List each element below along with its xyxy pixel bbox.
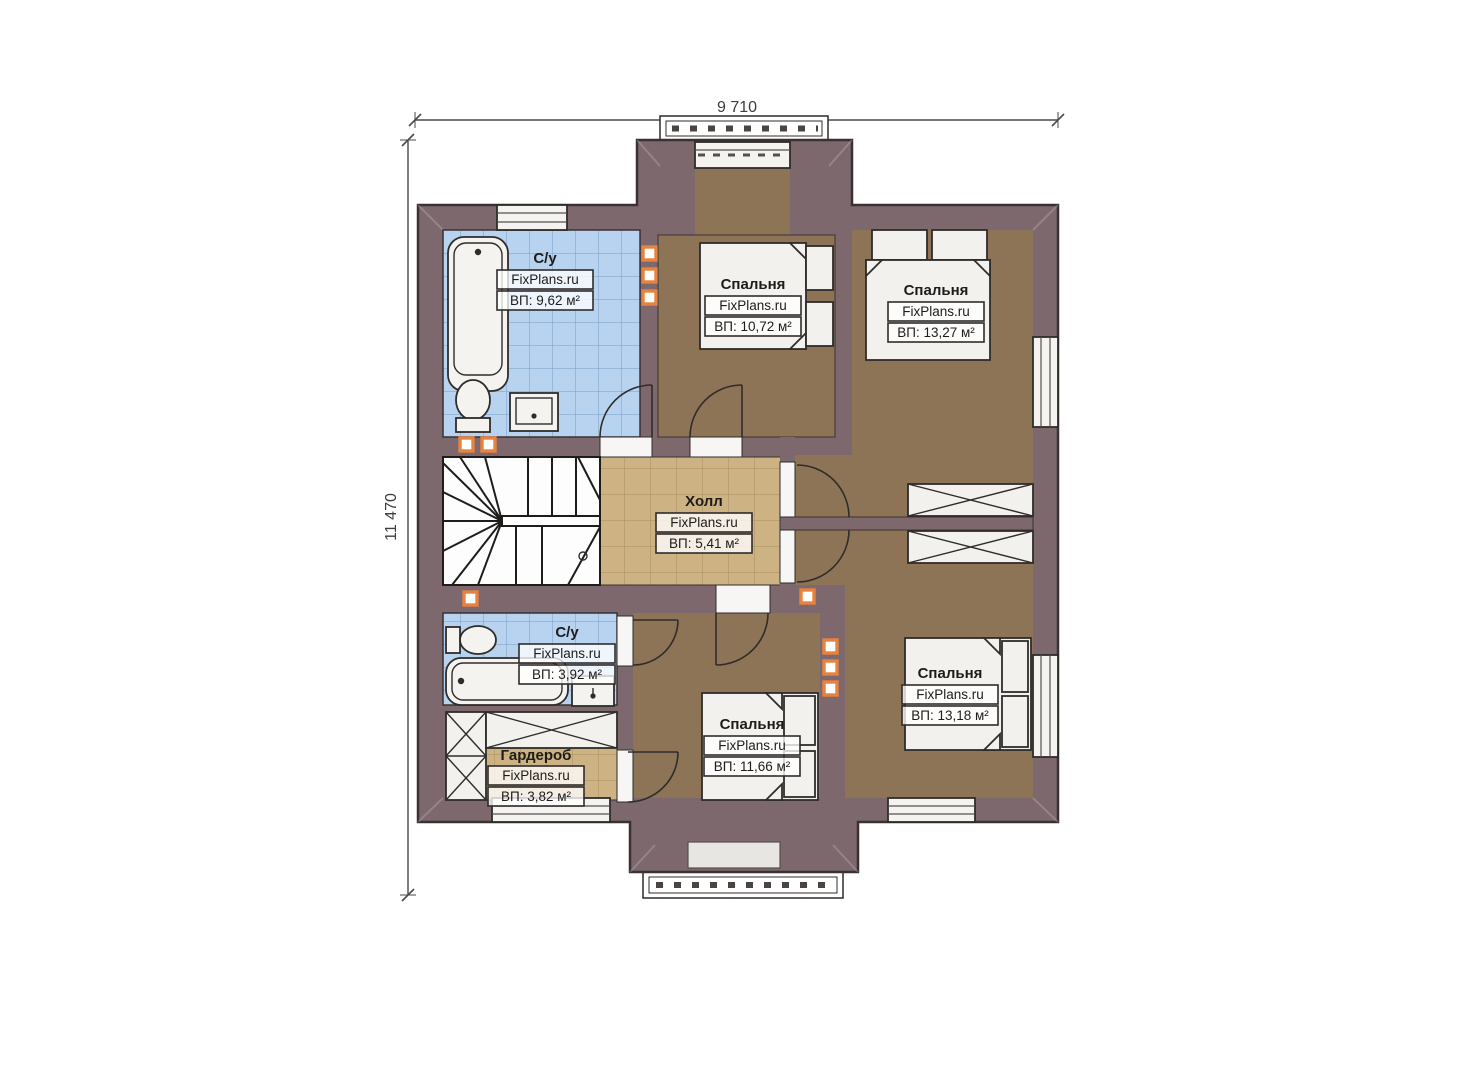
dimension-height-label: 11 470 bbox=[383, 493, 400, 541]
balcony-railing-bottom bbox=[643, 872, 843, 898]
window-bay-bottom bbox=[688, 842, 780, 868]
balcony-railing-top bbox=[660, 116, 828, 141]
watermark: FixPlans.ru bbox=[719, 298, 787, 313]
wardrobe-cabinet-horizontal bbox=[486, 712, 617, 748]
bathtub bbox=[448, 237, 508, 391]
toilet bbox=[456, 380, 490, 432]
watermark: FixPlans.ru bbox=[533, 646, 601, 661]
watermark: FixPlans.ru bbox=[502, 768, 570, 783]
toilet bbox=[446, 626, 496, 654]
room-name: С/у bbox=[555, 624, 579, 641]
floor-plan-page: 9 710 11 470 bbox=[0, 0, 1473, 1080]
closet bbox=[908, 484, 1033, 516]
watermark: FixPlans.ru bbox=[718, 738, 786, 753]
window bbox=[1033, 655, 1058, 757]
floor-plan-drawing: 9 710 11 470 bbox=[0, 0, 1473, 1080]
room-area: ВП: 13,27 м² bbox=[897, 325, 975, 340]
watermark: FixPlans.ru bbox=[670, 515, 738, 530]
room-area: ВП: 5,41 м² bbox=[669, 536, 740, 551]
room-name: Спальня bbox=[904, 282, 969, 299]
dimension-left: 11 470 bbox=[383, 134, 416, 901]
sink bbox=[510, 393, 558, 431]
wardrobe-cabinet-vertical bbox=[446, 712, 486, 800]
room-label-wardrobe: Гардероб FixPlans.ru ВП: 3,82 м² bbox=[488, 747, 584, 806]
window bbox=[497, 205, 567, 230]
window bbox=[1033, 337, 1058, 427]
room-area: ВП: 11,66 м² bbox=[714, 759, 791, 774]
room-name: Спальня bbox=[720, 716, 785, 733]
watermark: FixPlans.ru bbox=[902, 304, 970, 319]
room-area: ВП: 10,72 м² bbox=[714, 319, 792, 334]
room-area: ВП: 3,82 м² bbox=[501, 789, 572, 804]
room-area: ВП: 13,18 м² bbox=[911, 708, 989, 723]
room-name: Гардероб bbox=[501, 747, 572, 764]
watermark: FixPlans.ru bbox=[916, 687, 984, 702]
dimension-width-label: 9 710 bbox=[717, 99, 757, 116]
watermark: FixPlans.ru bbox=[511, 272, 579, 287]
window bbox=[888, 798, 975, 822]
room-area: ВП: 9,62 м² bbox=[510, 293, 581, 308]
bedrooms-divider-wall bbox=[780, 517, 1033, 530]
window-bay-top bbox=[695, 142, 790, 168]
room-name: Спальня bbox=[918, 665, 983, 682]
room-area: ВП: 3,92 м² bbox=[532, 667, 603, 682]
room-name: Холл bbox=[685, 493, 723, 510]
room-name: Спальня bbox=[721, 276, 786, 293]
closet bbox=[908, 531, 1033, 563]
room-name: С/у bbox=[533, 250, 557, 267]
